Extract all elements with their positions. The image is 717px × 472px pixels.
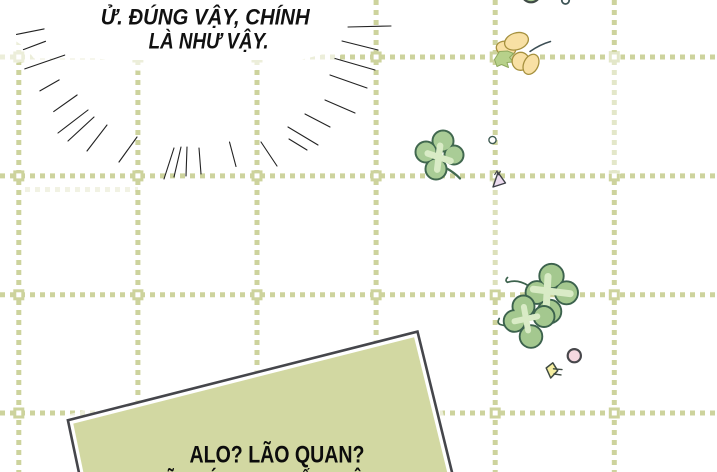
svg-text:LÃO CÓ NGHE THẤY KHÔNG?: LÃO CÓ NGHE THẤY KHÔNG? [155, 468, 400, 472]
svg-text:ALO? LÃO QUAN?: ALO? LÃO QUAN? [190, 441, 365, 469]
svg-text:LÀ NHƯ VẬY.: LÀ NHƯ VẬY. [149, 29, 269, 54]
svg-text:Ử. ĐÚNG VẬY, CHÍNH: Ử. ĐÚNG VẬY, CHÍNH [101, 5, 311, 30]
